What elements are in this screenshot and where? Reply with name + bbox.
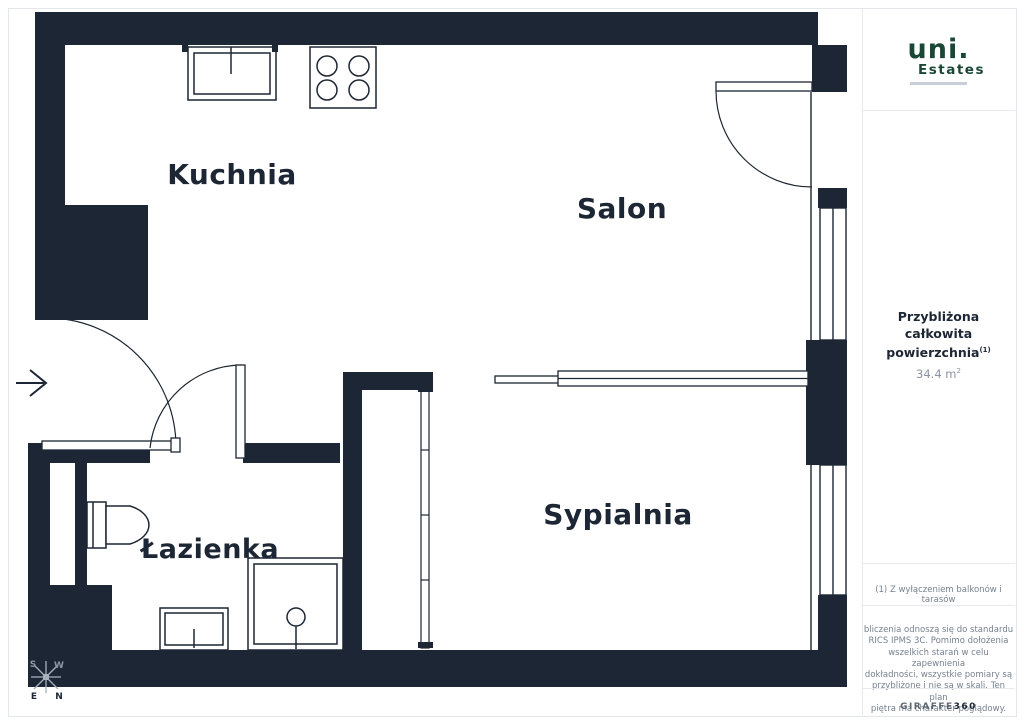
stove-hob	[310, 47, 376, 108]
wall-right-lower	[818, 595, 847, 655]
logo-primary-text: uni.	[862, 38, 1015, 62]
compass-e: E	[31, 692, 37, 702]
area-value: 34.4 m	[916, 367, 956, 381]
divider-line	[863, 110, 1015, 111]
wall-bottom	[28, 650, 847, 687]
divider-line	[863, 605, 1015, 606]
wall-right-cap1	[818, 188, 847, 208]
bathroom-sink	[160, 608, 228, 650]
wall-topright-block	[812, 45, 847, 92]
disclaimer-line: przybliżone i nie są w skali. Ten plan	[862, 681, 1015, 704]
brand-bold: 360	[954, 702, 977, 712]
area-title-line2: powierzchnia	[886, 345, 979, 360]
sliding-partition	[495, 371, 808, 386]
label-bathroom: Łazienka	[139, 534, 279, 565]
disclaimer-line: wszelkich starań w celu zapewnienia	[862, 648, 1015, 671]
label-bedroom: Sypialnia	[543, 498, 692, 531]
wall-bath-top-right	[243, 443, 340, 463]
disclaimer-line: bliczenia odnoszą się do standardu	[862, 625, 1015, 636]
window-living	[820, 208, 846, 340]
total-area: Przybliżona całkowita powierzchnia(1) 34…	[862, 308, 1015, 381]
divider-line	[863, 563, 1015, 564]
brand-light: GIRAFFE	[900, 702, 954, 712]
wall-top	[35, 12, 818, 45]
balcony-door	[716, 82, 812, 187]
compass-s: S	[30, 660, 36, 670]
disclaimer-line: RICS IPMS 3C. Pomimo dołożenia	[862, 636, 1015, 647]
entrance-arrow-icon	[16, 370, 46, 396]
label-kitchen: Kuchnia	[167, 158, 297, 191]
wall-right-mid	[806, 340, 847, 465]
entry-door	[42, 318, 180, 452]
wardrobe-track	[418, 386, 433, 648]
sidebar: uni. Estates Przybliżona całkowita powie…	[862, 8, 1015, 715]
area-footnote: (1) Z wyłączeniem balkonów i tarasów	[862, 585, 1015, 605]
compass-w: W	[54, 661, 64, 671]
walls	[28, 12, 847, 687]
label-living: Salon	[577, 192, 667, 225]
area-value-sup: 2	[957, 367, 961, 375]
divider-line	[863, 688, 1015, 689]
wall-bath-corner	[28, 585, 112, 650]
disclaimer-line: dokładności, wszystkie pomiary są	[862, 670, 1015, 681]
room-labels: Kuchnia Salon Sypialnia Łazienka	[139, 158, 693, 565]
wall-bath-inner-left	[75, 455, 87, 587]
wall-left-upper	[35, 12, 65, 208]
kitchen-sink	[182, 45, 278, 100]
logo-secondary-text: Estates	[862, 62, 1015, 78]
area-footnote-marker: (1)	[979, 346, 990, 354]
shower	[248, 558, 343, 650]
logo: uni. Estates	[862, 38, 1015, 85]
floorplan-page: Kuchnia Salon Sypialnia Łazienka S W E N	[0, 0, 1024, 724]
wall-bedroom-divider	[343, 372, 362, 657]
window-bedroom	[820, 465, 846, 595]
logo-tagline-bar	[910, 82, 967, 85]
giraffe360-brand: GIRAFFE360	[862, 702, 1015, 712]
area-title-line1: Przybliżona całkowita	[898, 309, 979, 341]
compass-n: N	[55, 692, 63, 702]
toilet	[87, 502, 149, 548]
wall-kitchen-column	[35, 205, 148, 320]
